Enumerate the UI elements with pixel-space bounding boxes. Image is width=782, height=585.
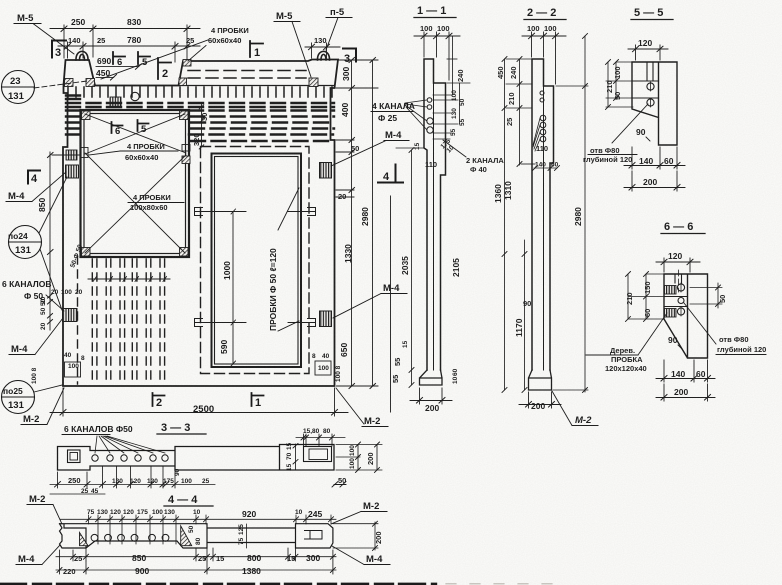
svg-text:1: 1 [254,47,260,59]
svg-text:60х60х40: 60х60х40 [125,153,158,162]
svg-text:55: 55 [393,358,402,366]
svg-text:6 КАНАЛОВ: 6 КАНАЛОВ [2,279,52,289]
svg-text:130: 130 [97,509,108,516]
svg-text:120: 120 [147,478,158,485]
svg-text:100: 100 [61,289,72,296]
svg-text:245: 245 [308,509,322,519]
svg-text:4: 4 [383,171,390,183]
svg-text:650: 650 [339,343,349,357]
svg-text:130: 130 [314,36,327,45]
svg-text:55: 55 [450,128,457,136]
svg-text:60: 60 [551,162,559,169]
svg-text:100: 100 [437,24,450,33]
svg-text:25: 25 [186,36,194,45]
svg-text:15: 15 [414,142,421,150]
svg-text:400: 400 [340,103,350,117]
svg-text:6 — 6: 6 — 6 [664,221,693,233]
svg-text:3: 3 [55,47,61,59]
svg-text:5 — 5: 5 — 5 [634,7,663,19]
svg-text:90: 90 [174,468,181,476]
svg-text:2: 2 [156,397,162,409]
svg-text:Ф 40: Ф 40 [470,165,487,174]
svg-text:15: 15 [286,463,293,471]
svg-text:20: 20 [338,192,346,201]
svg-text:2500: 2500 [193,404,214,415]
svg-text:120: 120 [110,509,121,516]
svg-text:830: 830 [127,17,141,27]
svg-text:15: 15 [286,442,293,450]
svg-text:15,80: 15,80 [303,428,320,435]
svg-text:по25: по25 [3,386,23,396]
svg-text:50: 50 [351,144,359,153]
svg-text:90: 90 [668,335,678,345]
svg-text:25: 25 [505,118,514,126]
svg-text:100: 100 [527,24,540,33]
svg-text:75: 75 [87,509,95,516]
svg-text:40: 40 [64,352,72,359]
svg-text:130: 130 [451,108,458,119]
svg-text:90: 90 [636,127,646,137]
svg-text:М-2: М-2 [575,415,592,426]
svg-text:140: 140 [639,156,653,166]
svg-text:60: 60 [664,156,674,166]
svg-text:100: 100 [318,365,329,372]
svg-text:20: 20 [40,322,47,330]
svg-text:125: 125 [238,524,245,535]
svg-text:75: 75 [238,537,245,545]
svg-text:2105: 2105 [451,258,461,277]
svg-text:4 — 4: 4 — 4 [168,494,198,506]
svg-text:15: 15 [216,554,224,563]
svg-text:6: 6 [115,126,120,137]
svg-text:120: 120 [638,38,652,48]
svg-text:2035: 2035 [400,256,410,275]
svg-text:60: 60 [643,309,652,317]
svg-text:60: 60 [696,369,706,379]
svg-text:по24: по24 [8,231,28,241]
svg-text:450: 450 [96,68,110,78]
svg-text:55: 55 [391,375,400,383]
svg-text:3 — 3: 3 — 3 [161,422,190,434]
svg-text:200: 200 [531,401,545,411]
svg-text:590: 590 [219,340,229,354]
svg-text:25: 25 [97,36,105,45]
svg-text:300: 300 [341,67,351,81]
svg-text:отв Ф80: отв Ф80 [590,146,620,155]
svg-text:250: 250 [68,476,81,485]
svg-text:2 КАНАЛА: 2 КАНАЛА [466,156,504,165]
svg-text:240: 240 [509,66,518,79]
svg-text:6 КАНАЛОВ Ф50: 6 КАНАЛОВ Ф50 [64,424,133,434]
svg-text:10: 10 [193,509,201,516]
svg-text:175: 175 [163,478,174,485]
svg-text:25: 25 [198,554,206,563]
svg-text:50 50: 50 50 [40,298,47,315]
svg-text:1170: 1170 [514,318,524,337]
svg-text:23: 23 [10,76,21,87]
svg-text:210: 210 [625,292,634,305]
svg-text:140: 140 [671,369,685,379]
svg-text:М-4: М-4 [8,191,25,202]
svg-text:60х60х40: 60х60х40 [208,36,241,45]
svg-text:Ф 25: Ф 25 [378,113,397,123]
svg-text:100: 100 [613,66,622,79]
svg-text:М-2: М-2 [363,501,379,512]
svg-text:М-4: М-4 [383,283,400,294]
svg-text:100: 100 [349,445,356,456]
svg-text:100: 100 [420,24,433,33]
svg-text:2980: 2980 [573,207,583,226]
svg-text:140: 140 [68,36,81,45]
svg-text:30: 30 [200,113,209,121]
svg-text:150: 150 [643,281,652,294]
svg-text:210: 210 [605,80,614,93]
svg-text:ПРОБКИ Ф 50 ℓ=120: ПРОБКИ Ф 50 ℓ=120 [268,248,278,331]
svg-text:1000: 1000 [222,261,232,280]
svg-text:120: 120 [130,478,141,485]
svg-text:М-4: М-4 [11,344,28,355]
svg-text:200: 200 [643,177,657,187]
svg-text:8: 8 [312,353,316,360]
svg-text:4: 4 [31,173,38,185]
svg-text:глубиной 120: глубиной 120 [717,345,766,354]
svg-text:100: 100 [544,24,557,33]
svg-text:3: 3 [344,53,350,65]
svg-text:4 ПРОБКИ: 4 ПРОБКИ [211,26,249,35]
svg-text:глубиной 120: глубиной 120 [583,155,632,164]
svg-text:100х80х60: 100х80х60 [130,203,168,212]
svg-text:п-5: п-5 [330,7,345,18]
svg-text:6: 6 [117,57,122,68]
svg-text:25: 25 [202,478,210,485]
svg-text:2980: 2980 [360,207,370,226]
svg-text:90: 90 [523,299,531,308]
svg-text:900: 900 [135,566,149,576]
svg-text:220: 220 [63,567,76,576]
svg-text:40: 40 [322,353,330,360]
svg-text:55: 55 [459,118,466,126]
svg-text:120: 120 [123,509,134,516]
svg-text:300: 300 [306,553,320,563]
svg-text:М-4: М-4 [385,130,402,141]
svg-text:10: 10 [452,376,459,384]
svg-text:100: 100 [68,363,79,370]
svg-text:690: 690 [97,56,111,66]
svg-text:М-5: М-5 [17,13,34,24]
svg-text:100 8: 100 8 [335,365,342,382]
svg-text:100: 100 [349,458,356,469]
svg-text:25: 25 [81,488,89,495]
svg-text:131: 131 [8,91,25,102]
svg-text:800: 800 [247,553,261,563]
svg-text:200: 200 [674,387,688,397]
svg-text:175: 175 [137,509,148,516]
svg-text:50: 50 [188,525,195,533]
svg-text:100: 100 [181,478,192,485]
svg-text:140: 140 [535,162,546,169]
svg-text:120: 120 [668,251,682,261]
svg-text:780: 780 [127,35,141,45]
svg-text:60: 60 [452,368,459,376]
svg-text:850: 850 [37,198,47,212]
svg-text:50: 50 [338,476,346,485]
svg-text:130: 130 [164,509,175,516]
svg-text:1: 1 [255,397,261,409]
svg-text:Дерев.: Дерев. [610,346,635,355]
svg-text:120х120х40: 120х120х40 [605,364,647,373]
svg-text:200: 200 [425,403,439,413]
svg-text:240: 240 [456,69,465,82]
svg-text:100: 100 [451,90,458,101]
svg-text:110: 110 [536,144,548,153]
svg-text:80: 80 [195,537,202,545]
svg-text:2: 2 [162,68,168,80]
svg-text:850: 850 [132,553,146,563]
svg-text:М-2: М-2 [364,416,380,427]
svg-text:М-2: М-2 [23,414,39,425]
svg-text:М-5: М-5 [276,11,293,22]
svg-text:210: 210 [507,92,516,105]
svg-text:200: 200 [366,452,375,465]
svg-text:320: 320 [192,133,201,146]
svg-text:15: 15 [287,554,295,563]
svg-text:2 — 2: 2 — 2 [527,7,556,19]
svg-text:920: 920 [242,509,256,519]
svg-text:131: 131 [15,245,32,256]
svg-text:100: 100 [152,509,163,516]
svg-text:131: 131 [8,400,25,411]
svg-text:1380: 1380 [242,566,261,576]
svg-text:100 8: 100 8 [31,367,38,384]
svg-text:5: 5 [142,57,148,68]
svg-text:50: 50 [613,92,622,100]
svg-text:ПРОБКА: ПРОБКА [611,355,643,364]
svg-text:450: 450 [496,66,505,79]
svg-text:М-2: М-2 [29,494,45,505]
svg-text:25: 25 [74,554,82,563]
svg-text:50: 50 [459,98,466,106]
svg-text:20: 20 [51,289,59,296]
svg-text:1310: 1310 [503,181,513,200]
svg-text:15: 15 [402,340,409,348]
svg-text:20: 20 [75,289,83,296]
svg-text:250: 250 [71,17,85,27]
svg-text:М-4: М-4 [18,554,35,565]
svg-text:8: 8 [81,355,85,362]
svg-text:4 КАНАЛА: 4 КАНАЛА [372,101,415,111]
svg-text:1360: 1360 [493,184,503,203]
svg-text:10: 10 [295,509,303,516]
svg-text:50: 50 [718,295,727,303]
svg-text:130: 130 [112,478,123,485]
svg-text:45: 45 [91,488,99,495]
svg-text:4 ПРОБКИ: 4 ПРОБКИ [127,142,165,151]
svg-text:70: 70 [286,452,293,460]
svg-text:4 ПРОБКИ: 4 ПРОБКИ [133,193,171,202]
svg-text:М-4: М-4 [366,554,383,565]
svg-text:110: 110 [425,160,437,169]
svg-text:5: 5 [141,124,147,135]
svg-text:отв Ф80: отв Ф80 [719,335,749,344]
svg-text:1 — 1: 1 — 1 [417,5,446,17]
svg-text:80: 80 [323,428,331,435]
svg-text:1330: 1330 [343,244,353,263]
